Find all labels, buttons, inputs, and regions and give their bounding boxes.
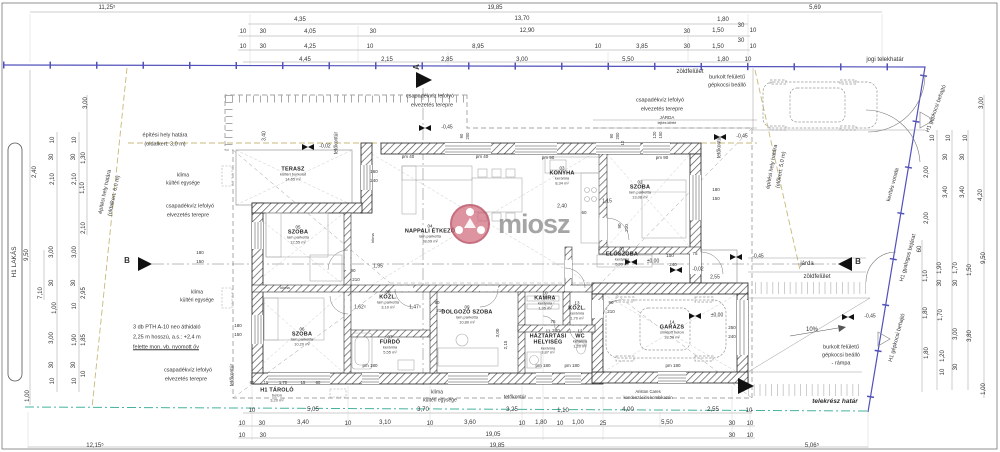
plan-sheet: 11,25⁵19,855,694,3513,701,8010304,053012… (0, 0, 1000, 452)
walls (252, 143, 748, 384)
car-garage (606, 297, 726, 361)
plot-part-boundary-line (25, 407, 868, 411)
slope-arrow (790, 325, 846, 336)
watermark-text: miosz (498, 209, 570, 240)
watermark: miosz (448, 202, 570, 246)
entry-triangles (878, 112, 934, 346)
site-lines (593, 68, 925, 372)
watermark-logo-icon (448, 202, 492, 246)
roof-contour (225, 95, 752, 398)
car-parking (763, 80, 877, 130)
unit-capsule (8, 143, 22, 381)
gate-arcs (866, 75, 925, 282)
terrace-outline (236, 150, 352, 205)
